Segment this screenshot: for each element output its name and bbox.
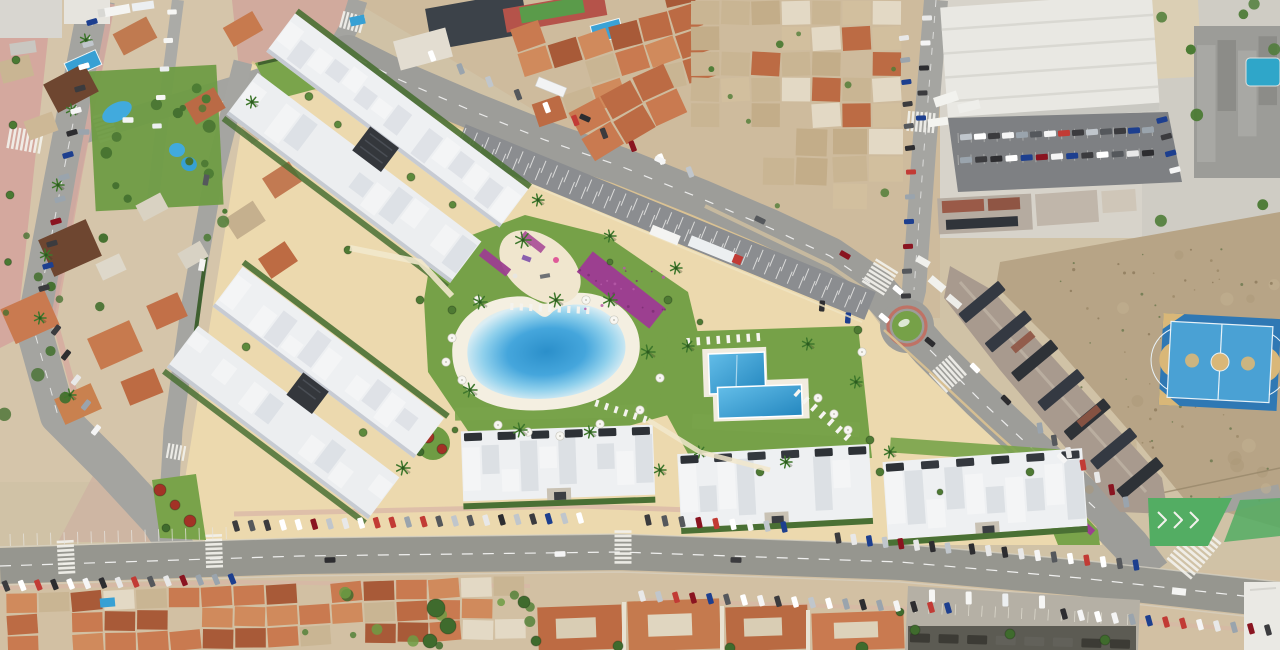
pool-umbrellas [639, 409, 641, 411]
house-roof [782, 26, 811, 50]
pool-umbrellas [451, 337, 453, 339]
resort-shrubs [854, 326, 862, 334]
house-roof [832, 156, 867, 183]
house-roof [104, 611, 135, 631]
parked-row-small-street [167, 9, 177, 14]
house-roof [203, 629, 234, 649]
garden-patches [302, 629, 308, 635]
avenue-palms [56, 183, 59, 186]
resort-palms [588, 430, 591, 433]
sun-loungers [738, 334, 739, 342]
scrub-dots [1070, 290, 1072, 292]
roof-units [482, 445, 500, 474]
parked-row-vertical-street [916, 115, 926, 120]
villa-pool-twin-a [169, 143, 185, 157]
parked-cars-lot [1044, 130, 1056, 137]
scrub-dots [1181, 425, 1184, 428]
shed-building [1101, 189, 1136, 213]
purple-flower-texture [623, 267, 626, 270]
roof-units [1044, 463, 1065, 505]
scrub-dots [1086, 307, 1089, 310]
house-roof [6, 593, 37, 613]
scrub-dots [1154, 408, 1157, 411]
dark-roof-units [1081, 638, 1101, 648]
garden-patches [510, 590, 519, 599]
solar-panels [497, 431, 515, 440]
solar-panels [464, 433, 482, 442]
scrub-dots [1267, 468, 1269, 470]
scrub-blotches [1269, 279, 1280, 290]
truck-cab [97, 8, 105, 17]
house-roof [72, 612, 103, 632]
scrub-blotches [1174, 250, 1183, 259]
resort-palms [401, 466, 404, 469]
scrub-dots [1172, 421, 1174, 423]
sun-loungers [644, 416, 646, 423]
house-roof [396, 580, 427, 599]
scrub-dots [1154, 304, 1156, 306]
parked-row-vertical-street [904, 219, 914, 224]
purple-flower-texture [642, 307, 644, 309]
parked-cars-lot [990, 155, 1002, 162]
parked-cars-lot [974, 133, 986, 140]
band-trees [1005, 629, 1015, 639]
parked-cars-lot [1072, 129, 1084, 136]
car-moving [554, 551, 565, 557]
pool-umbrellas [599, 423, 601, 425]
house-roof [691, 52, 720, 76]
playground-item [513, 274, 518, 279]
garden-patches [372, 624, 383, 635]
red-flower-trees [437, 444, 447, 454]
scrub-blotches [1117, 302, 1129, 314]
roof-units [539, 446, 557, 468]
cars-connector [122, 117, 133, 123]
house-roof [872, 26, 902, 51]
promenade-trees [5, 259, 12, 266]
house-roof [364, 602, 396, 623]
resort-shrubs [866, 436, 874, 444]
resort-palms [854, 380, 857, 383]
roof-units [832, 459, 851, 488]
parked-row-small-street [163, 38, 173, 43]
scrub-dots [1151, 440, 1153, 442]
scrub-dots [1158, 316, 1160, 318]
house-roof [812, 77, 841, 102]
resort-palms [478, 300, 481, 303]
scrub-blotches [1228, 451, 1242, 465]
promenade-trees [6, 191, 14, 199]
villa-trees [45, 346, 55, 356]
scrub-dots [1072, 268, 1075, 271]
scrub-dots [1060, 280, 1062, 282]
scrub-dots [1121, 329, 1124, 332]
scrub-dots [1148, 333, 1150, 335]
scrub-dots [1190, 495, 1192, 497]
house-roof [721, 77, 751, 102]
scrub-dots [1097, 317, 1099, 319]
sun-loungers [634, 413, 636, 420]
scrub-dots [1217, 269, 1220, 272]
shed-building [1035, 190, 1099, 226]
purple-flower-texture [584, 308, 587, 311]
house-roof [331, 603, 363, 624]
house-roof [8, 636, 39, 650]
resort-palms [468, 388, 471, 391]
resort-palms [784, 460, 787, 463]
van-moving [1172, 587, 1187, 595]
solar-panels [848, 446, 866, 455]
avenue-palms [38, 316, 41, 319]
purple-flower-texture [664, 309, 666, 311]
house-roof [833, 183, 867, 209]
car-moving [730, 557, 741, 563]
villa-trees [192, 83, 202, 93]
scrub-dots [1153, 272, 1155, 274]
scrub-dots [1152, 446, 1154, 448]
purple-flower-texture [600, 284, 602, 286]
purple-flower-texture [595, 280, 597, 282]
parked-row-vertical-street [919, 65, 929, 70]
courtyard [648, 613, 693, 637]
sun-loungers [718, 336, 719, 344]
villa-trees [199, 105, 207, 113]
villa-trees [203, 120, 216, 133]
purple-flower-texture [632, 288, 634, 290]
sun-loungers [615, 406, 617, 413]
parked-cars-lot [1100, 128, 1112, 135]
house-roof [842, 26, 872, 51]
scrub-dots [1073, 262, 1075, 264]
resort-palms [554, 298, 557, 301]
entrance-dark [554, 492, 566, 500]
purple-flower-texture [579, 269, 581, 271]
village-trees [746, 119, 751, 124]
resort-shrubs [607, 259, 613, 265]
courtyard [556, 617, 597, 638]
roof-units [986, 486, 1006, 514]
sun-loungers [708, 337, 709, 345]
house-roof [811, 26, 841, 51]
house-roof [234, 606, 265, 626]
pool-umbrellas [585, 299, 587, 301]
shed-rust-roof [942, 199, 985, 213]
scrub-dots [1149, 383, 1150, 384]
villa-trees [34, 272, 43, 281]
house-roof [363, 581, 394, 601]
bottom-trees [440, 618, 456, 634]
parked-vans [929, 589, 935, 602]
roof-units [717, 461, 737, 510]
purple-flower-texture [651, 271, 653, 273]
scrub-dots [1270, 282, 1273, 285]
gray-building-units [1197, 45, 1216, 162]
purple-flower-texture [662, 276, 665, 279]
solar-panels [680, 455, 698, 464]
avenue-palms [68, 393, 71, 396]
parked-row-vertical-street [903, 244, 913, 249]
garden-patches [350, 632, 356, 638]
solar-panels [632, 427, 650, 436]
scrub-dots [1149, 441, 1151, 443]
solar-panels [886, 463, 905, 472]
row-houses-b [677, 444, 873, 534]
scrub-dots [1124, 351, 1126, 353]
house-roof [691, 103, 719, 127]
resort-palms [646, 350, 649, 353]
house-roof [202, 608, 233, 628]
house-roof [462, 620, 493, 640]
solar-panels [531, 430, 549, 439]
resort-palms [674, 266, 677, 269]
purple-flower-texture [600, 304, 603, 307]
parked-vans [1039, 595, 1045, 608]
bottom-trees [531, 636, 541, 646]
house-roof [751, 51, 781, 76]
villa-trees [112, 132, 122, 142]
house-roof [201, 586, 233, 607]
house-roof [842, 77, 871, 101]
house-roof [721, 52, 750, 77]
scrub-blotches [1246, 294, 1254, 302]
house-roof [751, 78, 780, 102]
solar-panels [1026, 453, 1045, 462]
roof-units [679, 461, 699, 512]
row-houses-c [883, 448, 1088, 546]
house-roof [169, 588, 200, 607]
parked-cars-lot [1051, 153, 1063, 160]
house-roof [105, 632, 136, 650]
parked-row-vertical-street [920, 40, 930, 45]
house-roof [795, 157, 827, 185]
pool-umbrellas [613, 319, 615, 321]
roof-units [965, 473, 986, 514]
house-roof [842, 1, 870, 25]
parked-cars-lot [1086, 129, 1098, 136]
plaza-trees [1155, 215, 1167, 227]
parked-cars-lot [1127, 150, 1139, 157]
house-roof [811, 103, 841, 128]
court-center-circle [1211, 353, 1230, 372]
bottom-trees [518, 596, 530, 608]
sun-loungers [625, 410, 627, 417]
parked-cars-lot [988, 132, 1000, 139]
house-roof [462, 599, 493, 619]
roof-units [635, 434, 654, 483]
purple-flower-texture [614, 283, 617, 286]
pool-umbrellas [559, 435, 561, 437]
resort-shrubs [937, 489, 943, 495]
roof-units [904, 470, 926, 525]
house-roof [691, 26, 720, 50]
plaza-trees [1156, 12, 1167, 23]
lap-pool-long [717, 385, 802, 419]
roof-units [884, 468, 906, 524]
parked-cars-lot [1114, 128, 1126, 135]
house-roof [873, 52, 902, 76]
house-roof [751, 1, 780, 26]
purple-flower-texture [636, 280, 638, 282]
dark-roof-units [1053, 637, 1073, 647]
scrub-dots [1125, 378, 1126, 379]
villa-trees [112, 182, 119, 189]
solar-panels [598, 428, 616, 437]
house-roof [235, 628, 266, 647]
parked-cars-lot [1096, 151, 1108, 158]
scrub-dots [1080, 386, 1082, 388]
roof-units [558, 435, 577, 485]
house-roof [6, 614, 38, 635]
crosswalk-bottom-center [615, 557, 632, 560]
scrub-dots [1219, 278, 1221, 280]
garden-tree [162, 524, 170, 532]
resort-shrubs [876, 468, 884, 476]
house-roof [137, 610, 168, 630]
villa-trees [185, 157, 193, 165]
roof-units [462, 447, 481, 491]
roof-units [597, 443, 615, 469]
house-roof [782, 78, 810, 102]
pool-umbrellas [461, 379, 463, 381]
plaza-trees [1190, 109, 1203, 122]
red-flower-trees [170, 500, 180, 510]
pool-umbrellas [527, 431, 529, 433]
parked-cars-lot [1142, 150, 1154, 157]
house-roof [266, 584, 298, 605]
pool-umbrellas [497, 424, 499, 426]
roof-units [699, 485, 718, 512]
scrub-dots [1255, 281, 1258, 284]
house-roof [796, 128, 828, 156]
scrub-blotches [1261, 483, 1272, 494]
scrub-dots [1142, 254, 1144, 256]
parked-cars-lot [1128, 127, 1140, 134]
parked-row-vertical-street [902, 268, 912, 273]
village-trees [708, 66, 714, 72]
tiny-pool [100, 597, 116, 607]
pool-umbrellas [445, 361, 447, 363]
house-roof [137, 631, 169, 650]
roof-units [944, 466, 965, 509]
scrub-dots [1149, 418, 1152, 421]
house-roof [833, 129, 867, 154]
scrub-blotches [1085, 485, 1094, 494]
resort-shrubs [416, 296, 424, 304]
dark-roof-units [1024, 637, 1044, 647]
white-building-corner [1244, 582, 1280, 650]
scrub-dots [1210, 259, 1213, 262]
parked-cars-lot [1005, 155, 1017, 162]
scrub-dots [1210, 459, 1213, 462]
parked-cars-lot [1020, 154, 1032, 161]
resort-palms [521, 238, 524, 241]
scrub-dots [1236, 435, 1239, 438]
house-roof [812, 1, 841, 25]
house-roof [869, 129, 903, 154]
house-roof [299, 604, 331, 625]
resort-palms [536, 198, 539, 201]
scrub-dots [1220, 248, 1222, 250]
pool-umbrellas [861, 351, 863, 353]
purple-flower-texture [662, 309, 664, 311]
promenade-trees [9, 121, 17, 129]
roof-units [813, 455, 833, 510]
house-roof [169, 629, 201, 650]
scrub-dots [1172, 295, 1175, 298]
courtyard [744, 617, 783, 636]
house-roof [812, 52, 841, 76]
gray-building-units [1218, 40, 1237, 111]
parked-cars-lot [960, 157, 972, 164]
scrub-dots [1194, 289, 1196, 291]
parked-cars-lot [1016, 131, 1028, 138]
scrub-blotches [1132, 395, 1144, 407]
house-roof [494, 576, 525, 595]
dark-roof-units [1110, 639, 1130, 649]
house-roof [751, 103, 779, 127]
resort-shrubs [697, 319, 703, 325]
topleft-structure [0, 0, 62, 38]
villa-trees [23, 232, 30, 239]
garden-patches [524, 616, 535, 627]
sun-loungers [605, 403, 607, 410]
solar-panels [956, 458, 975, 467]
house-roof [461, 577, 492, 597]
villa-trees [124, 195, 132, 203]
scrub-dots [1223, 414, 1225, 416]
parked-row-vertical-street [917, 90, 927, 95]
villa-trees [217, 216, 229, 228]
sun-loungers [698, 337, 699, 345]
solar-panels [815, 448, 833, 457]
resort-palms [608, 298, 611, 301]
sun-loungers [748, 334, 749, 342]
crosswalk-bottom-center [615, 530, 632, 533]
bottom-trees [613, 641, 623, 650]
villa-trees [31, 368, 44, 381]
village-trees [776, 40, 784, 48]
parked-vans [966, 591, 972, 604]
village-trees [880, 188, 889, 197]
sun-loungers [758, 333, 759, 341]
house-roof [233, 585, 264, 606]
house-roof [781, 52, 810, 77]
promenade-trees [12, 56, 20, 64]
red-flower-trees [184, 515, 196, 527]
villa-trees [95, 302, 104, 311]
resort-shrubs [448, 306, 456, 314]
roundabout-green [892, 311, 922, 341]
house-roof [136, 588, 167, 609]
purple-flower-texture [627, 305, 630, 308]
roof-units [616, 451, 634, 485]
sun-loungers [596, 400, 598, 407]
crosswalk-bottom-center [615, 548, 632, 551]
house-roof [691, 1, 719, 25]
scrub-dots [1117, 263, 1119, 265]
parked-row-vertical-street [901, 293, 911, 298]
house-roof [72, 633, 104, 650]
shed-rust-roof [988, 197, 1021, 211]
house-roof [782, 1, 811, 25]
house-roof [299, 625, 331, 647]
house-roof [763, 158, 795, 186]
solar-panels [921, 460, 940, 469]
scrub-dots [1190, 249, 1192, 251]
parked-cars-lot [1142, 127, 1154, 134]
scrub-dots [1218, 496, 1220, 498]
scrub-dots [1127, 406, 1129, 408]
